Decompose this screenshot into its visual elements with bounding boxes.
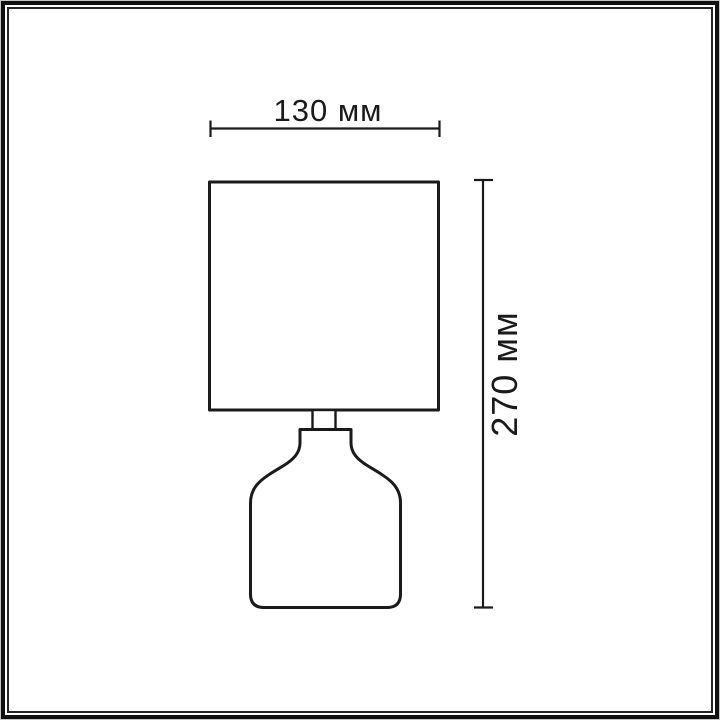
height-dimension: 270 мм [474,180,525,608]
height-dimension-label: 270 мм [484,311,525,437]
lamp-base-outline [251,430,401,608]
lamp-dimension-drawing: 130 мм 270 мм [0,0,720,720]
product-dimension-diagram: 130 мм 270 мм [0,0,720,720]
width-dimension-label: 130 мм [274,93,383,128]
lamp-neck-outline [313,410,336,430]
lampshade-outline [210,182,439,410]
width-dimension: 130 мм [211,93,440,137]
lamp-drawing [210,182,439,608]
